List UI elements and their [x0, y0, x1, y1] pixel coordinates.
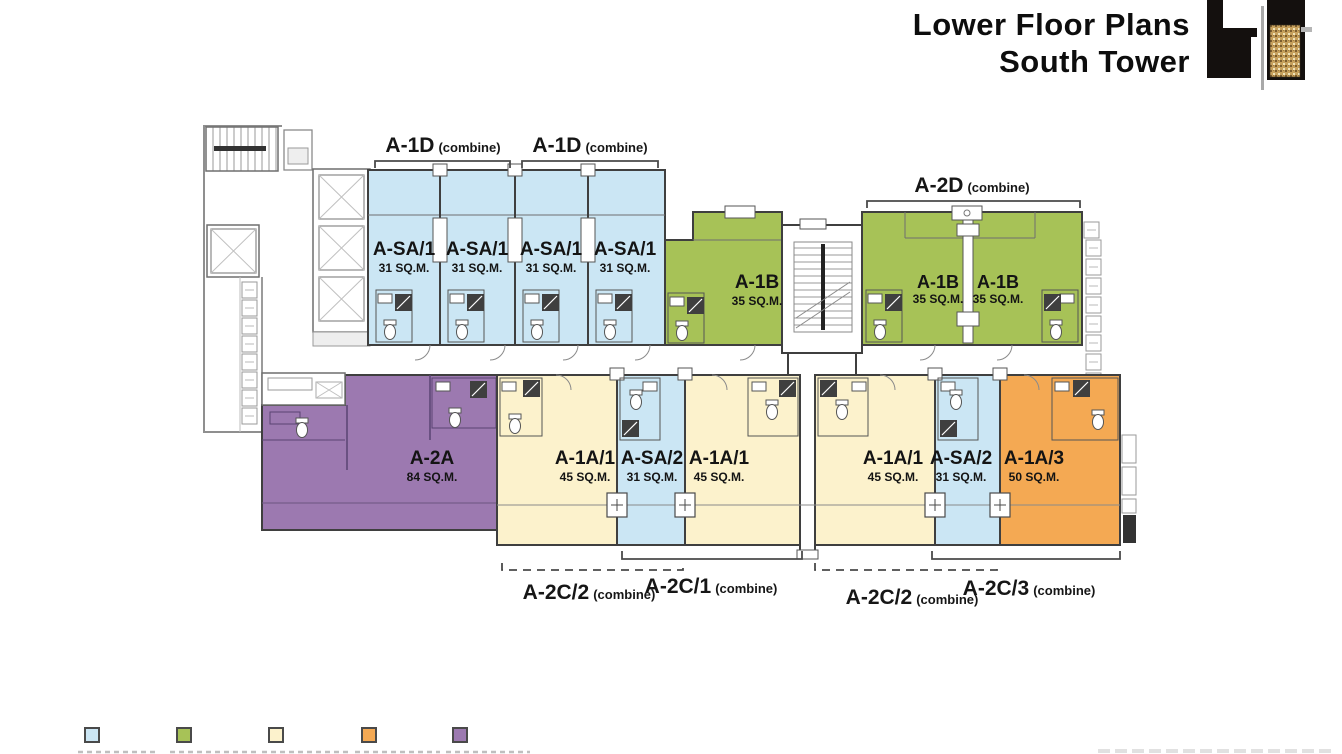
unit-label-a1a1-2: A-1A/145 SQ.M. — [689, 449, 749, 483]
unit-label-a2a: A-2A84 SQ.M. — [407, 449, 458, 483]
combine-label-a1d-2: A-1D(combine) — [532, 134, 647, 158]
unit-label-a1a3: A-1A/350 SQ.M. — [1004, 449, 1064, 483]
unit-label-asa1-2: A-SA/131 SQ.M. — [446, 240, 508, 274]
combine-label-a2d: A-2D(combine) — [914, 174, 1029, 198]
combine-label-a2c3: A-2C/3(combine) — [963, 577, 1096, 601]
combine-label-a2c2-2: A-2C/2(combine) — [846, 586, 979, 610]
unit-label-asa2-1: A-SA/231 SQ.M. — [621, 449, 683, 483]
unit-label-a1a1-1: A-1A/145 SQ.M. — [555, 449, 615, 483]
unit-label-asa2-2: A-SA/231 SQ.M. — [930, 449, 992, 483]
building-logo — [1205, 0, 1313, 92]
unit-label-asa1-1: A-SA/131 SQ.M. — [373, 240, 435, 274]
title-line-2: South Tower — [913, 43, 1190, 80]
title-line-1: Lower Floor Plans — [913, 6, 1190, 43]
legend-swatch-cream — [268, 727, 284, 743]
combine-label-a2c2-1: A-2C/2(combine) — [523, 581, 656, 605]
unit-label-a1a1-3: A-1A/145 SQ.M. — [863, 449, 923, 483]
unit-label-asa1-4: A-SA/131 SQ.M. — [594, 240, 656, 274]
legend-swatch-orange — [361, 727, 377, 743]
floor-plan-drawing — [0, 0, 1342, 754]
page: Lower Floor Plans South Tower A-1D(combi… — [0, 0, 1342, 754]
unit-label-asa1-3: A-SA/131 SQ.M. — [520, 240, 582, 274]
unit-label-a1b-2: A-1B35 SQ.M. — [913, 273, 964, 306]
unit-a2a — [262, 373, 497, 530]
combine-label-a2c1: A-2C/1(combine) — [645, 575, 778, 599]
clipped-caption-fragments — [78, 751, 1332, 752]
central-stair-core — [782, 219, 862, 375]
unit-label-a1b-3: A-1B35 SQ.M. — [973, 273, 1024, 306]
legend-swatch-blue — [84, 727, 100, 743]
legend-swatch-purple — [452, 727, 468, 743]
combine-label-a1d-1: A-1D(combine) — [385, 134, 500, 158]
page-title: Lower Floor Plans South Tower — [913, 6, 1190, 80]
legend-swatch-green — [176, 727, 192, 743]
unit-label-a1b-1: A-1B35 SQ.M. — [732, 273, 783, 307]
